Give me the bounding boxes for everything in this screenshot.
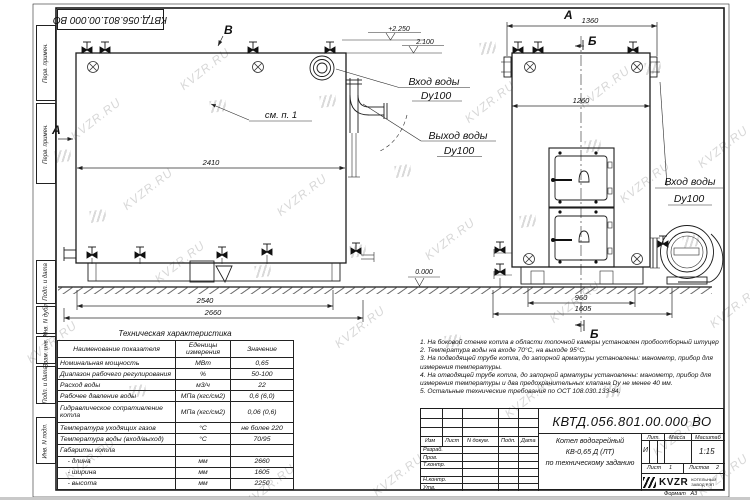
front-skid xyxy=(521,254,643,285)
sheet-label: Лист xyxy=(647,465,661,471)
drain-valves xyxy=(87,244,272,264)
table-row: Номинальная мощность МВт 0,65 xyxy=(58,358,294,369)
row-utv: Утв. xyxy=(423,485,436,491)
lit-value: И xyxy=(643,447,648,454)
blower-fan xyxy=(650,226,723,285)
ground-line xyxy=(58,287,712,294)
margin-box-podp-data-2: Подп. и дата xyxy=(36,366,56,404)
row-prov: Пров. xyxy=(423,455,438,461)
tech-row-value: 2660 xyxy=(231,456,294,467)
table-row: Температура уходящих газов °С не более 2… xyxy=(58,423,294,434)
kvzr-logo-subtext: КОТЕЛЬНЫЙ ЗАВОД РЭП xyxy=(691,477,716,487)
kvzr-logo-icon xyxy=(643,477,656,488)
tech-row-value: 0,6 (6,0) xyxy=(231,391,294,402)
dim-1605: 1605 xyxy=(575,304,593,313)
table-row: - высота мм 2250 xyxy=(58,478,294,489)
tech-row-units: °С xyxy=(176,423,231,434)
col-list: Лист xyxy=(445,438,459,444)
masshtab-value: 1:15 xyxy=(699,447,715,456)
callout-outlet-dn: Dy100 xyxy=(444,145,475,157)
furnace-door-upper xyxy=(549,148,614,207)
view-label-a: А xyxy=(563,8,573,22)
dim-2410: 2410 xyxy=(202,158,221,167)
tech-row-value: 0,06 (0,6) xyxy=(231,402,294,423)
technical-notes: 1. На боковой стенке котла в области топ… xyxy=(420,339,722,396)
masshtab-label: Масштаб xyxy=(695,435,721,441)
col-izm: Изм xyxy=(425,438,435,444)
product-model: КВ-0,65 Д (ЛТ) xyxy=(539,446,641,457)
detail-ref-label: см. п. 1 xyxy=(265,110,297,121)
kvzr-logo-text: KVZR xyxy=(659,477,688,488)
tech-row-name: Температура воды (вход/выход) xyxy=(58,434,176,445)
tech-row-units: МВт xyxy=(176,358,231,369)
tech-row-units: мм xyxy=(176,456,231,467)
margin-box-vzam-inv: Взам. инв. N xyxy=(36,336,56,364)
table-row: Расход воды м3/ч 22 xyxy=(58,380,294,391)
dim-1260: 1260 xyxy=(573,96,591,105)
section-label-b-top: Б xyxy=(588,34,597,48)
tech-row-units: °С xyxy=(176,434,231,445)
tech-row-units: мм xyxy=(176,467,231,478)
dim-960: 960 xyxy=(575,293,588,302)
table-row: - длина мм 2660 xyxy=(58,456,294,467)
row-tkontr: Т.контр. xyxy=(423,462,445,468)
title-block-name: Котел водогрейный КВ-0,65 Д (ЛТ) по техн… xyxy=(539,435,641,468)
col-podp: Подп. xyxy=(501,438,516,444)
level-0000: 0.000 xyxy=(415,269,433,276)
col-data: Дата xyxy=(521,438,536,444)
lit-label: Лит. xyxy=(647,435,660,441)
dim-2540: 2540 xyxy=(196,296,215,305)
margin-box-perv-primen-1: Перв. примен. xyxy=(36,25,56,101)
product-basis: по техническому заданию xyxy=(539,457,641,468)
tech-col-units: Еденицы измерения xyxy=(176,341,231,358)
logo-sub-line2: ЗАВОД РЭП xyxy=(691,482,716,487)
table-row: Диапазон рабочего регулирования % 50-100 xyxy=(58,369,294,380)
tech-row-units: мм xyxy=(176,478,231,489)
tech-col-value: Значение xyxy=(231,341,294,358)
row-nkontr: Н.контр. xyxy=(423,477,446,483)
callout-front-inlet-water: Вход воды xyxy=(665,176,716,188)
callout-inlet-dn: Dy100 xyxy=(421,90,452,102)
outlet-piping xyxy=(346,78,407,262)
margin-box-podp-data-1: Подп. и дата xyxy=(36,260,56,304)
drawing-sheet: KVZR.RU KVZR.RU KVZR.RU KVZR.RU KVZR.RU … xyxy=(0,0,750,500)
inlet-flange xyxy=(310,56,334,80)
tech-row-name: - ширина xyxy=(58,467,176,478)
callout-outlet-water: Выход воды xyxy=(428,130,487,142)
row-razrab: Разраб. xyxy=(423,447,443,453)
level-2100: 2.100 xyxy=(415,39,434,46)
top-stamp-doc-number: КВТД.056.801.00.000 ВО xyxy=(57,9,164,30)
sheets-value: 2 xyxy=(716,465,719,471)
dim-1360: 1360 xyxy=(582,16,600,25)
note-item: 3. На подводящей трубе котла, до запорно… xyxy=(420,355,722,371)
col-doc: N докум. xyxy=(467,438,489,444)
title-block-doc-number: КВТД.056.801.00.000 ВО xyxy=(539,409,725,433)
furnace-door-lower xyxy=(549,208,614,267)
tech-row-name: Гидравлическое сопративление котла xyxy=(58,402,176,423)
margin-box-inv-podl: Инв. N подл. xyxy=(36,417,56,464)
dim-2660: 2660 xyxy=(204,308,223,317)
tech-row-name: - длина xyxy=(58,456,176,467)
front-side-valves xyxy=(494,242,512,287)
section-arrow-v: В xyxy=(224,23,233,37)
side-view-annotations: 2410 2540 2660 А В см. п. 1 +2.250 xyxy=(51,23,496,322)
callout-front-inlet-dn: Dy100 xyxy=(674,193,705,205)
level-plus-2250: +2.250 xyxy=(388,26,410,33)
margin-box-perv-primen-2: Перв. примен. xyxy=(36,103,56,184)
side-skid xyxy=(88,261,340,282)
table-row: Температура воды (вход/выход) °С 70/95 xyxy=(58,434,294,445)
tech-row-name: Рабочее давление воды xyxy=(58,391,176,402)
tech-row-value: 22 xyxy=(231,380,294,391)
tech-row-units: МПа (кгс/см2) xyxy=(176,391,231,402)
tech-row-name: Диапазон рабочего регулирования xyxy=(58,369,176,380)
tech-row-value: 2250 xyxy=(231,478,294,489)
tech-row-name: Расход воды xyxy=(58,380,176,391)
note-item: 5. Остальные технические требования по О… xyxy=(420,388,722,396)
tech-row-value: не более 220 xyxy=(231,423,294,434)
margin-box-inv-dubl: Инв. N дубл. xyxy=(36,306,56,334)
title-block: Изм Лист N докум. Подп. Дата Разраб. Про… xyxy=(420,408,724,490)
note-item: 4. На отводящей трубе котла, до запорной… xyxy=(420,372,722,388)
tech-row-value xyxy=(231,445,294,456)
product-name: Котел водогрейный xyxy=(539,435,641,446)
tech-row-value: 1605 xyxy=(231,467,294,478)
tech-row-name: Номинальная мощность xyxy=(58,358,176,369)
table-row: Габариты котла xyxy=(58,445,294,456)
side-view xyxy=(64,42,407,282)
tech-table-title: Техническая характеристика xyxy=(57,329,293,338)
kvzr-logo: KVZR КОТЕЛЬНЫЙ ЗАВОД РЭП xyxy=(643,474,723,490)
table-row: Гидравлическое сопративление котла МПа (… xyxy=(58,402,294,423)
table-row: Рабочее давление воды МПа (кгс/см2) 0,6 … xyxy=(58,391,294,402)
massa-label: Масса xyxy=(669,435,685,441)
tech-row-value: 50-100 xyxy=(231,369,294,380)
tech-row-units xyxy=(176,445,231,456)
tech-row-name: Температура уходящих газов xyxy=(58,423,176,434)
table-row: - ширина мм 1605 xyxy=(58,467,294,478)
tech-row-value: 70/95 xyxy=(231,434,294,445)
tech-col-name: Наименование показателя xyxy=(58,341,176,358)
tech-row-value: 0,65 xyxy=(231,358,294,369)
tech-row-name: - высота xyxy=(58,478,176,489)
tech-row-units: м3/ч xyxy=(176,380,231,391)
note-item: 1. На боковой стенке котла в области топ… xyxy=(420,339,722,347)
tech-row-units: МПа (кгс/см2) xyxy=(176,402,231,423)
sheets-label: Листов xyxy=(689,465,709,471)
sheet-value: 1 xyxy=(669,465,672,471)
callout-inlet-water: Вход воды xyxy=(409,76,460,88)
tech-row-name: Габариты котла xyxy=(58,445,176,456)
tech-row-units: % xyxy=(176,369,231,380)
tech-characteristics-table: Наименование показателя Еденицы измерени… xyxy=(57,340,294,490)
